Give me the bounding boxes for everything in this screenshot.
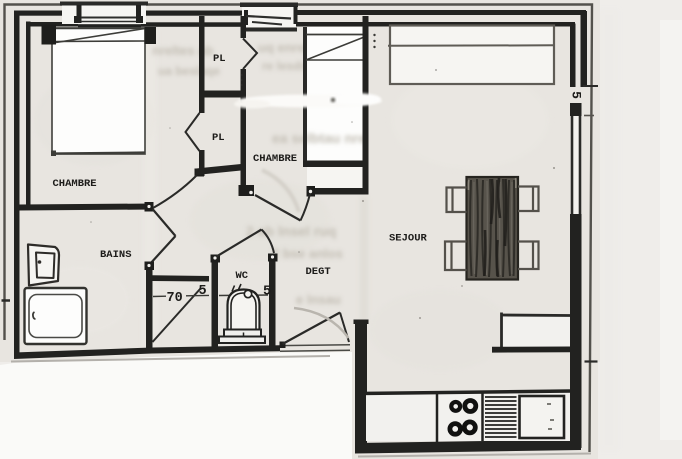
svg-text:PL: PL xyxy=(212,132,225,144)
svg-text:5: 5 xyxy=(569,91,584,99)
svg-text:SEJOUR: SEJOUR xyxy=(389,233,428,245)
svg-text:CHAMBRE: CHAMBRE xyxy=(253,153,297,165)
svg-text:2 bse anlos: 2 bse anlos xyxy=(272,246,343,261)
svg-text:WC: WC xyxy=(236,270,249,282)
svg-text:PL: PL xyxy=(213,53,226,65)
svg-text:70: 70 xyxy=(167,291,183,306)
svg-text:ua beslaqe: ua beslaqe xyxy=(158,64,220,78)
svg-text:DEGT: DEGT xyxy=(306,266,331,278)
svg-text:CHAMBRE: CHAMBRE xyxy=(53,178,97,190)
svg-text:BAINS: BAINS xyxy=(100,249,132,261)
svg-text:5: 5 xyxy=(263,285,271,300)
svg-text:5: 5 xyxy=(199,284,207,299)
svg-text:ea selbtau nre: ea selbtau nre xyxy=(272,130,366,146)
svg-text:e lnsau: e lnsau xyxy=(296,292,341,307)
